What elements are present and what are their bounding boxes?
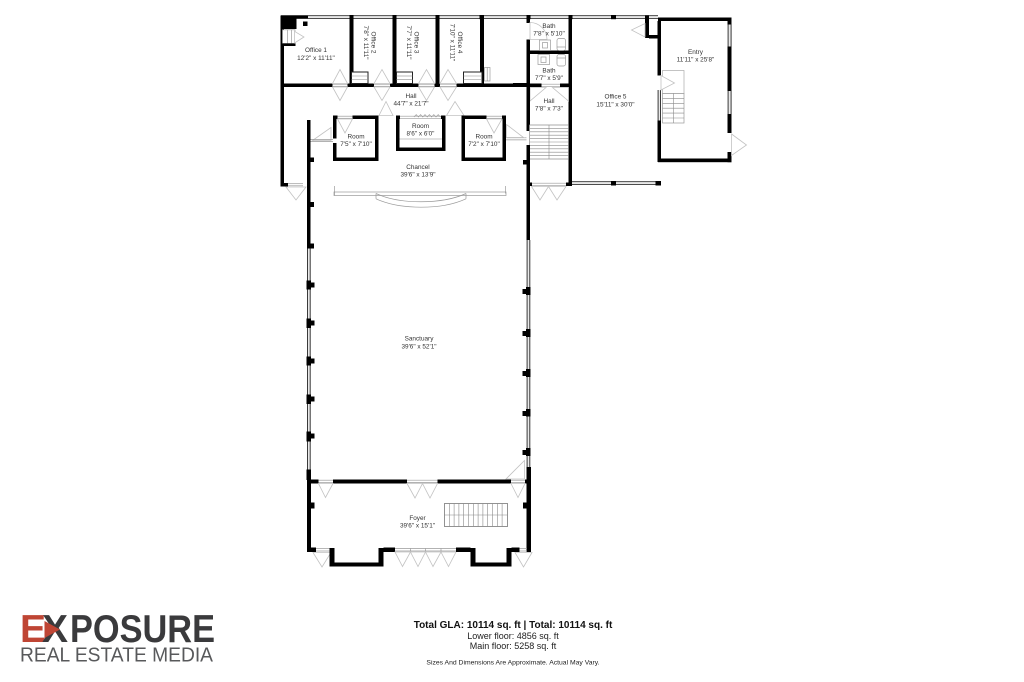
svg-text:Bath: Bath [542, 68, 556, 75]
svg-text:7'5" x 7'10": 7'5" x 7'10" [340, 141, 372, 148]
svg-text:Hall: Hall [405, 93, 416, 100]
svg-text:7'7" x 11'11": 7'7" x 11'11" [405, 25, 412, 59]
svg-text:15'11" x 30'0": 15'11" x 30'0" [596, 102, 634, 109]
svg-text:Chancel: Chancel [406, 164, 429, 171]
svg-text:44'7" x 21'7": 44'7" x 21'7" [393, 101, 428, 108]
svg-text:Office 5: Office 5 [605, 94, 627, 101]
svg-text:7'8" x 7'3": 7'8" x 7'3" [535, 106, 563, 113]
svg-text:7'2" x 7'10": 7'2" x 7'10" [468, 141, 500, 148]
svg-text:8'6" x 6'0": 8'6" x 6'0" [407, 131, 435, 138]
svg-text:7'8" x 5'10": 7'8" x 5'10" [533, 31, 565, 38]
svg-text:Foyer: Foyer [409, 515, 426, 522]
svg-text:12'2" x 11'11": 12'2" x 11'11" [297, 55, 335, 62]
svg-text:11'11" x 25'8": 11'11" x 25'8" [677, 57, 715, 64]
svg-text:Lower floor: 4856 sq. ft: Lower floor: 4856 sq. ft [467, 631, 559, 641]
svg-text:Entry: Entry [688, 49, 704, 56]
svg-text:39'6" x 52'1": 39'6" x 52'1" [401, 344, 436, 351]
svg-text:Office 2: Office 2 [370, 32, 377, 54]
svg-text:Bath: Bath [542, 23, 556, 30]
svg-text:Main floor: 5258 sq. ft: Main floor: 5258 sq. ft [470, 641, 557, 651]
svg-text:7'7" x 5'9": 7'7" x 5'9" [535, 75, 563, 82]
svg-text:Room: Room [475, 134, 492, 141]
svg-text:Room: Room [412, 123, 429, 130]
svg-text:Sizes And Dimensions Are Appro: Sizes And Dimensions Are Approximate. Ac… [426, 660, 599, 667]
svg-text:39'6" x 15'1": 39'6" x 15'1" [400, 523, 435, 530]
svg-text:Office 1: Office 1 [305, 47, 327, 54]
svg-text:Sanctuary: Sanctuary [405, 336, 435, 343]
svg-text:Total GLA: 10114 sq. ft | Tota: Total GLA: 10114 sq. ft | Total: 10114 s… [414, 620, 613, 631]
svg-text:Office 3: Office 3 [413, 32, 420, 54]
svg-text:7'10" x 11'11": 7'10" x 11'11" [449, 24, 456, 62]
svg-text:Hall: Hall [543, 98, 554, 105]
svg-text:REAL ESTATE MEDIA: REAL ESTATE MEDIA [20, 644, 213, 667]
svg-text:Room: Room [347, 134, 364, 141]
svg-text:7'8" x 11'11": 7'8" x 11'11" [362, 25, 369, 59]
svg-text:39'6" x 13'9": 39'6" x 13'9" [400, 172, 435, 179]
svg-text:Office 4: Office 4 [456, 32, 463, 54]
